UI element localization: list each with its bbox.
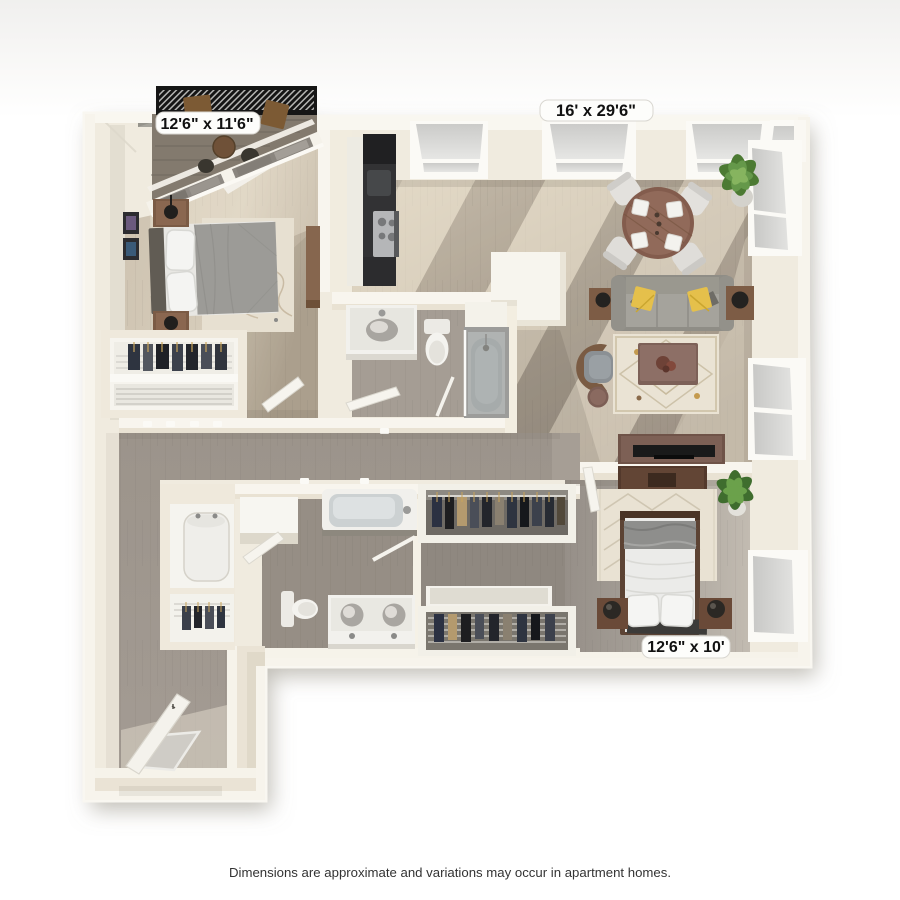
svg-text:12'6" x 10': 12'6" x 10': [647, 639, 724, 656]
svg-text:16' x 29'6": 16' x 29'6": [556, 102, 636, 120]
svg-text:Dimensions are approximate and: Dimensions are approximate and variation…: [229, 865, 671, 880]
svg-text:12'6" x 11'6": 12'6" x 11'6": [160, 116, 253, 133]
